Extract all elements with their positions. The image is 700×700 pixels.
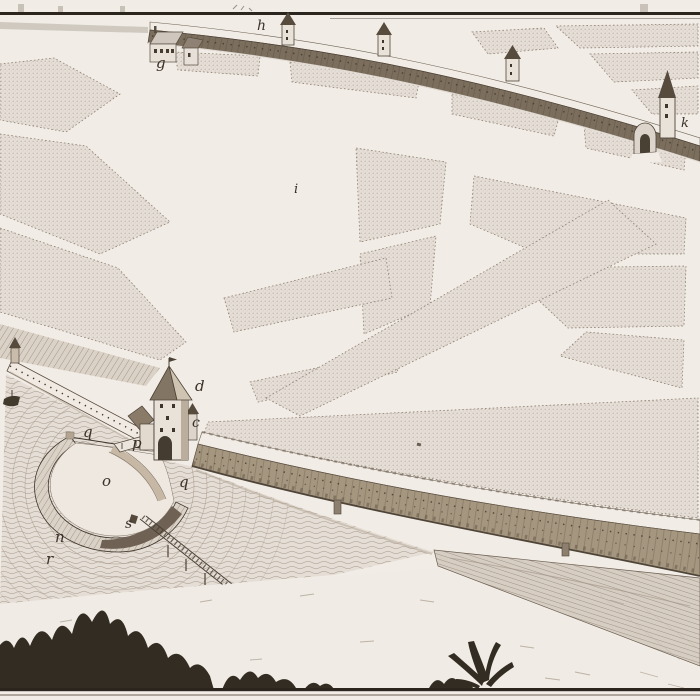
bottom-border-thin-line bbox=[0, 695, 700, 696]
gate-tower-side-shade bbox=[181, 398, 188, 460]
top-border-line bbox=[0, 12, 700, 15]
map-label-q: q bbox=[179, 473, 189, 491]
map-label-k: k bbox=[681, 116, 689, 131]
engraving-canvas: ghkidcqpoqsnr bbox=[0, 0, 700, 700]
map-label-c: c bbox=[192, 415, 200, 431]
gate-arch-opening bbox=[158, 436, 172, 460]
map-label-n: n bbox=[55, 528, 65, 546]
map-label-d: d bbox=[195, 377, 205, 395]
bottom-border-line bbox=[0, 688, 700, 691]
engraving-plate: ghkidcqpoqsnr bbox=[0, 0, 700, 700]
house2-front bbox=[184, 48, 198, 65]
chimney bbox=[154, 26, 157, 33]
map-label-o: o bbox=[102, 472, 111, 490]
wall-buttress bbox=[562, 543, 569, 556]
map-label-q: q bbox=[83, 423, 93, 441]
map-label-r: r bbox=[46, 550, 54, 568]
gate-annex bbox=[140, 424, 154, 450]
gate-road bbox=[630, 152, 662, 164]
top-border-thin-line bbox=[330, 18, 700, 19]
map-label-h: h bbox=[257, 18, 266, 34]
ravelin-end-knob bbox=[66, 432, 74, 439]
corner-turret bbox=[11, 348, 19, 363]
map-label-g: g bbox=[156, 54, 166, 72]
map-label-p: p bbox=[132, 434, 142, 452]
map-label-s: s bbox=[125, 516, 132, 532]
wall-buttress bbox=[334, 500, 341, 514]
map-label-i: i bbox=[294, 182, 298, 197]
